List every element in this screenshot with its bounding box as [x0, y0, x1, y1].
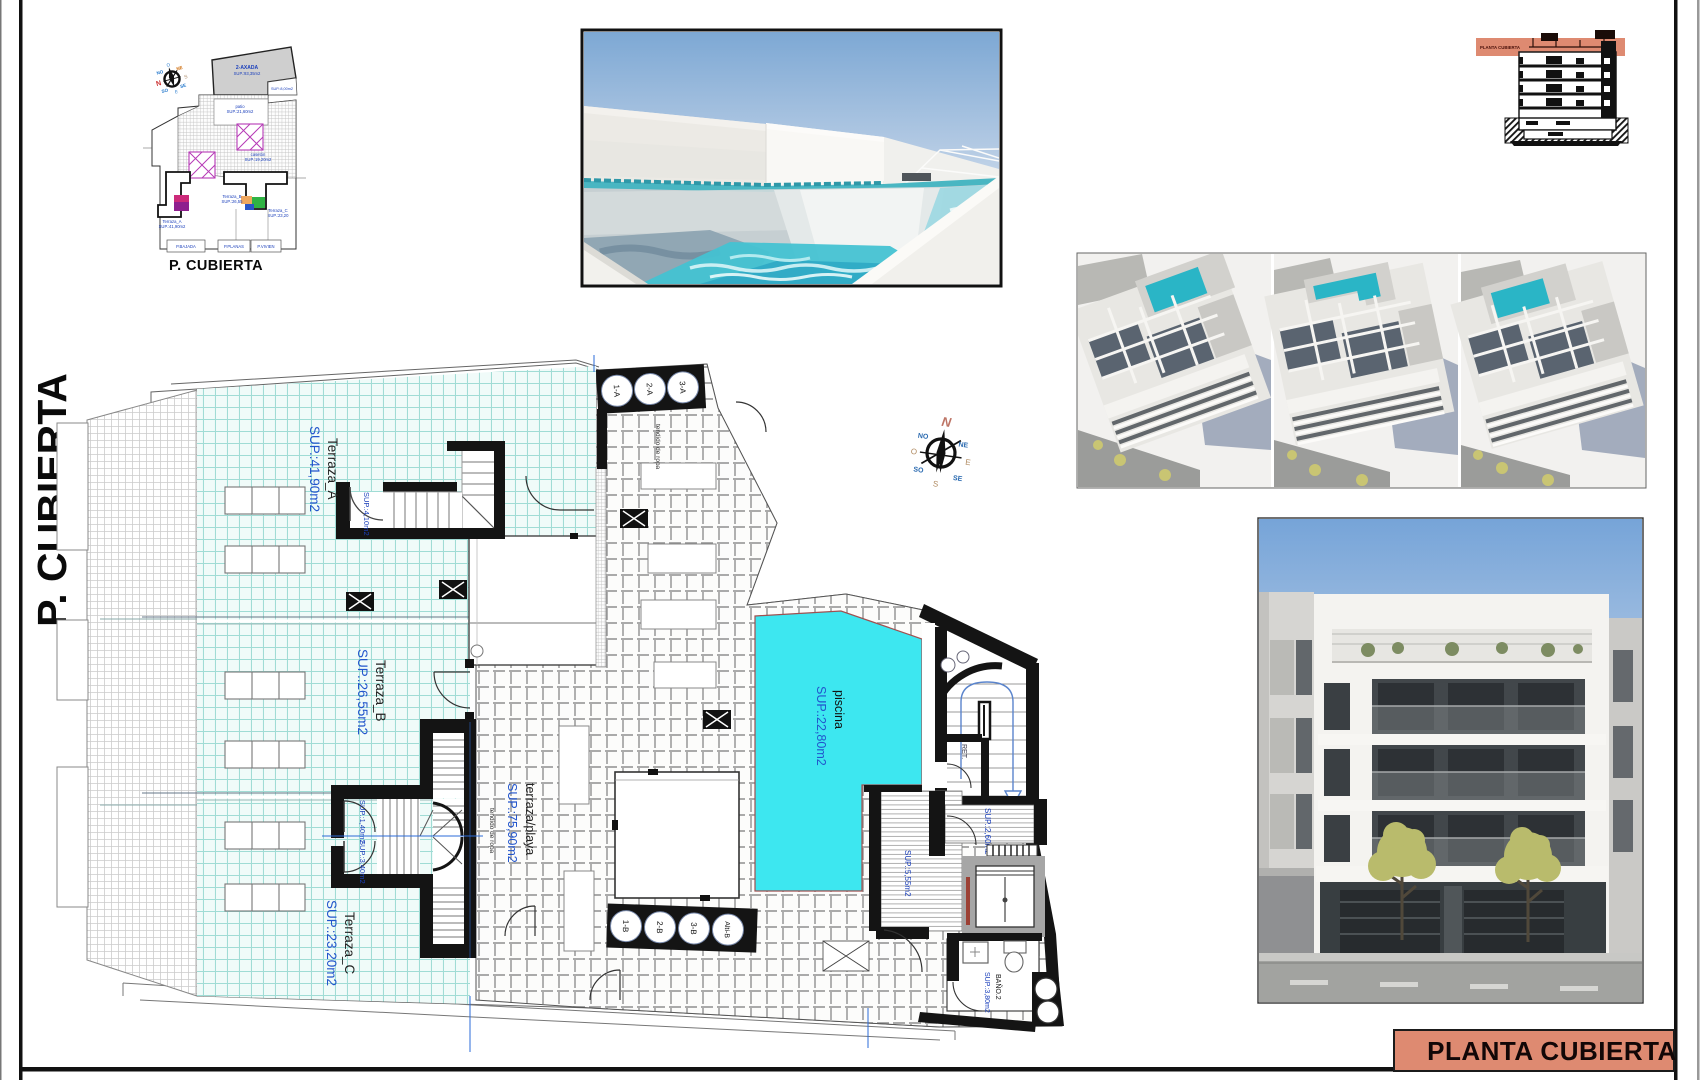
svg-text:SUP.:41,90m2: SUP.:41,90m2	[159, 224, 186, 229]
svg-text:SUP.:3,40m2: SUP.:3,40m2	[358, 840, 367, 884]
svg-text:BAÑO.2: BAÑO.2	[994, 974, 1003, 1000]
svg-text:SUP.:23,20: SUP.:23,20	[268, 213, 290, 218]
svg-text:piscina: piscina	[832, 690, 846, 729]
svg-text:P.BAJADA: P.BAJADA	[176, 244, 196, 249]
svg-text:SUP.:75,90m2: SUP.:75,90m2	[505, 783, 519, 863]
svg-text:SUP.:21,60m2: SUP.:21,60m2	[227, 109, 254, 114]
svg-text:Alti-B: Alti-B	[723, 921, 731, 938]
svg-text:Terraza_C: Terraza_C	[342, 912, 357, 975]
svg-text:SE: SE	[952, 475, 963, 483]
svg-text:SUP.:3,80m2: SUP.:3,80m2	[983, 972, 990, 1013]
svg-text:2-A: 2-A	[645, 383, 655, 397]
svg-text:tendido de ropa: tendido de ropa	[654, 424, 661, 470]
svg-text:SUP.:5,55m2: SUP.:5,55m2	[903, 850, 912, 897]
svg-text:P. CUBIERTA: P. CUBIERTA	[169, 258, 263, 274]
svg-text:3-B: 3-B	[689, 922, 698, 935]
svg-text:1-A: 1-A	[612, 384, 622, 398]
svg-text:P.VIVIEN: P.VIVIEN	[257, 244, 274, 249]
svg-text:SUP.:93,35m2: SUP.:93,35m2	[234, 71, 261, 76]
svg-text:3-A: 3-A	[678, 381, 688, 395]
svg-text:PLANTA CUBIERTA: PLANTA CUBIERTA	[1480, 45, 1520, 50]
svg-text:SUP.:8,00m2: SUP.:8,00m2	[271, 87, 293, 91]
svg-text:SUP.:26,55: SUP.:26,55	[222, 199, 244, 204]
svg-text:SUP.:23,20m2: SUP.:23,20m2	[324, 900, 339, 986]
svg-text:PLANTA CUBIERTA: PLANTA CUBIERTA	[1427, 1036, 1677, 1066]
svg-text:Terraza_A: Terraza_A	[325, 438, 340, 500]
svg-text:SUP.:1,40m2: SUP.:1,40m2	[358, 800, 367, 844]
svg-text:NE: NE	[958, 441, 969, 449]
svg-text:SUP.:41,90m2: SUP.:41,90m2	[307, 426, 322, 512]
svg-text:SUP.:26,55m2: SUP.:26,55m2	[355, 649, 370, 735]
svg-text:terraza/playa: terraza/playa	[523, 783, 537, 855]
svg-text:Terraza_B: Terraza_B	[373, 660, 388, 722]
svg-text:SUP.:19,20m2: SUP.:19,20m2	[245, 157, 272, 162]
svg-text:2-B: 2-B	[655, 921, 664, 934]
svg-text:1-B: 1-B	[621, 920, 630, 933]
svg-text:P.PLANAS: P.PLANAS	[224, 244, 244, 249]
svg-text:SO: SO	[913, 466, 925, 474]
svg-text:SUP.:4,10m2: SUP.:4,10m2	[362, 492, 371, 536]
svg-text:RET.: RET.	[960, 744, 967, 759]
svg-text:SUP.:22,80m2: SUP.:22,80m2	[814, 686, 828, 766]
svg-text:tendido de ropa: tendido de ropa	[488, 808, 495, 854]
svg-text:O: O	[910, 447, 917, 457]
